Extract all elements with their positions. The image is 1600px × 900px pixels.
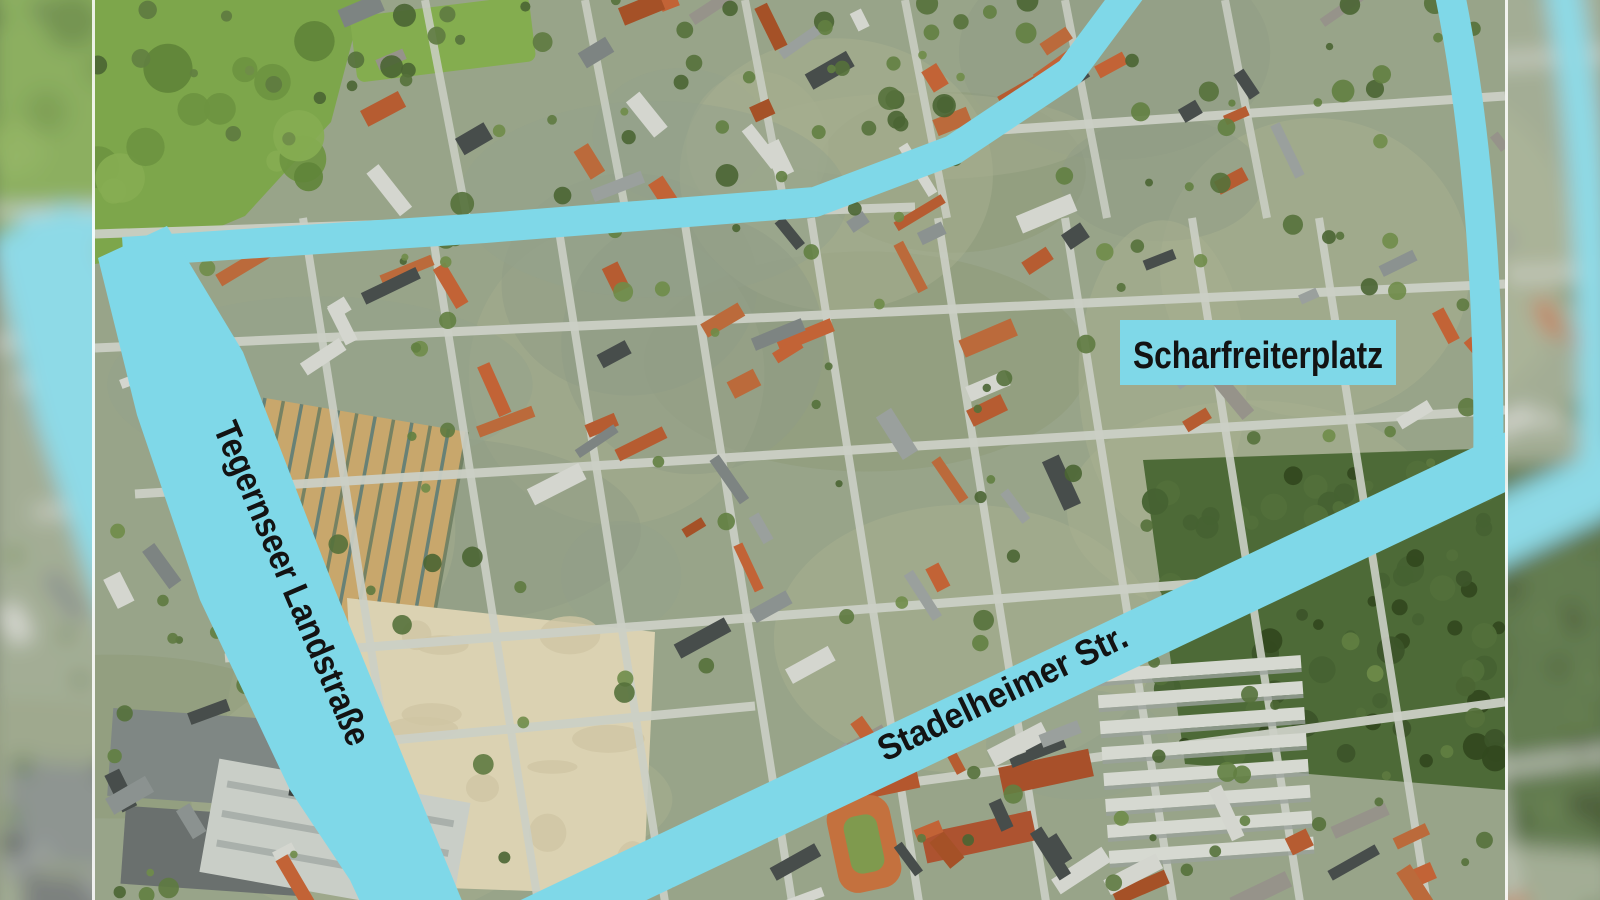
- label-scharfreiterplatz: Scharfreiterplatz: [1120, 320, 1396, 385]
- aerial-map-screenshot: Scharfreiterplatz Tegernseer Landstraße …: [0, 0, 1600, 900]
- map-scene: Scharfreiterplatz Tegernseer Landstraße …: [0, 0, 1509, 900]
- left-seam: [92, 0, 95, 900]
- label-scharfreiterplatz-text: Scharfreiterplatz: [1133, 335, 1383, 377]
- right-seam: [1505, 0, 1508, 900]
- aerial-map: Scharfreiterplatz Tegernseer Landstraße …: [0, 0, 1600, 900]
